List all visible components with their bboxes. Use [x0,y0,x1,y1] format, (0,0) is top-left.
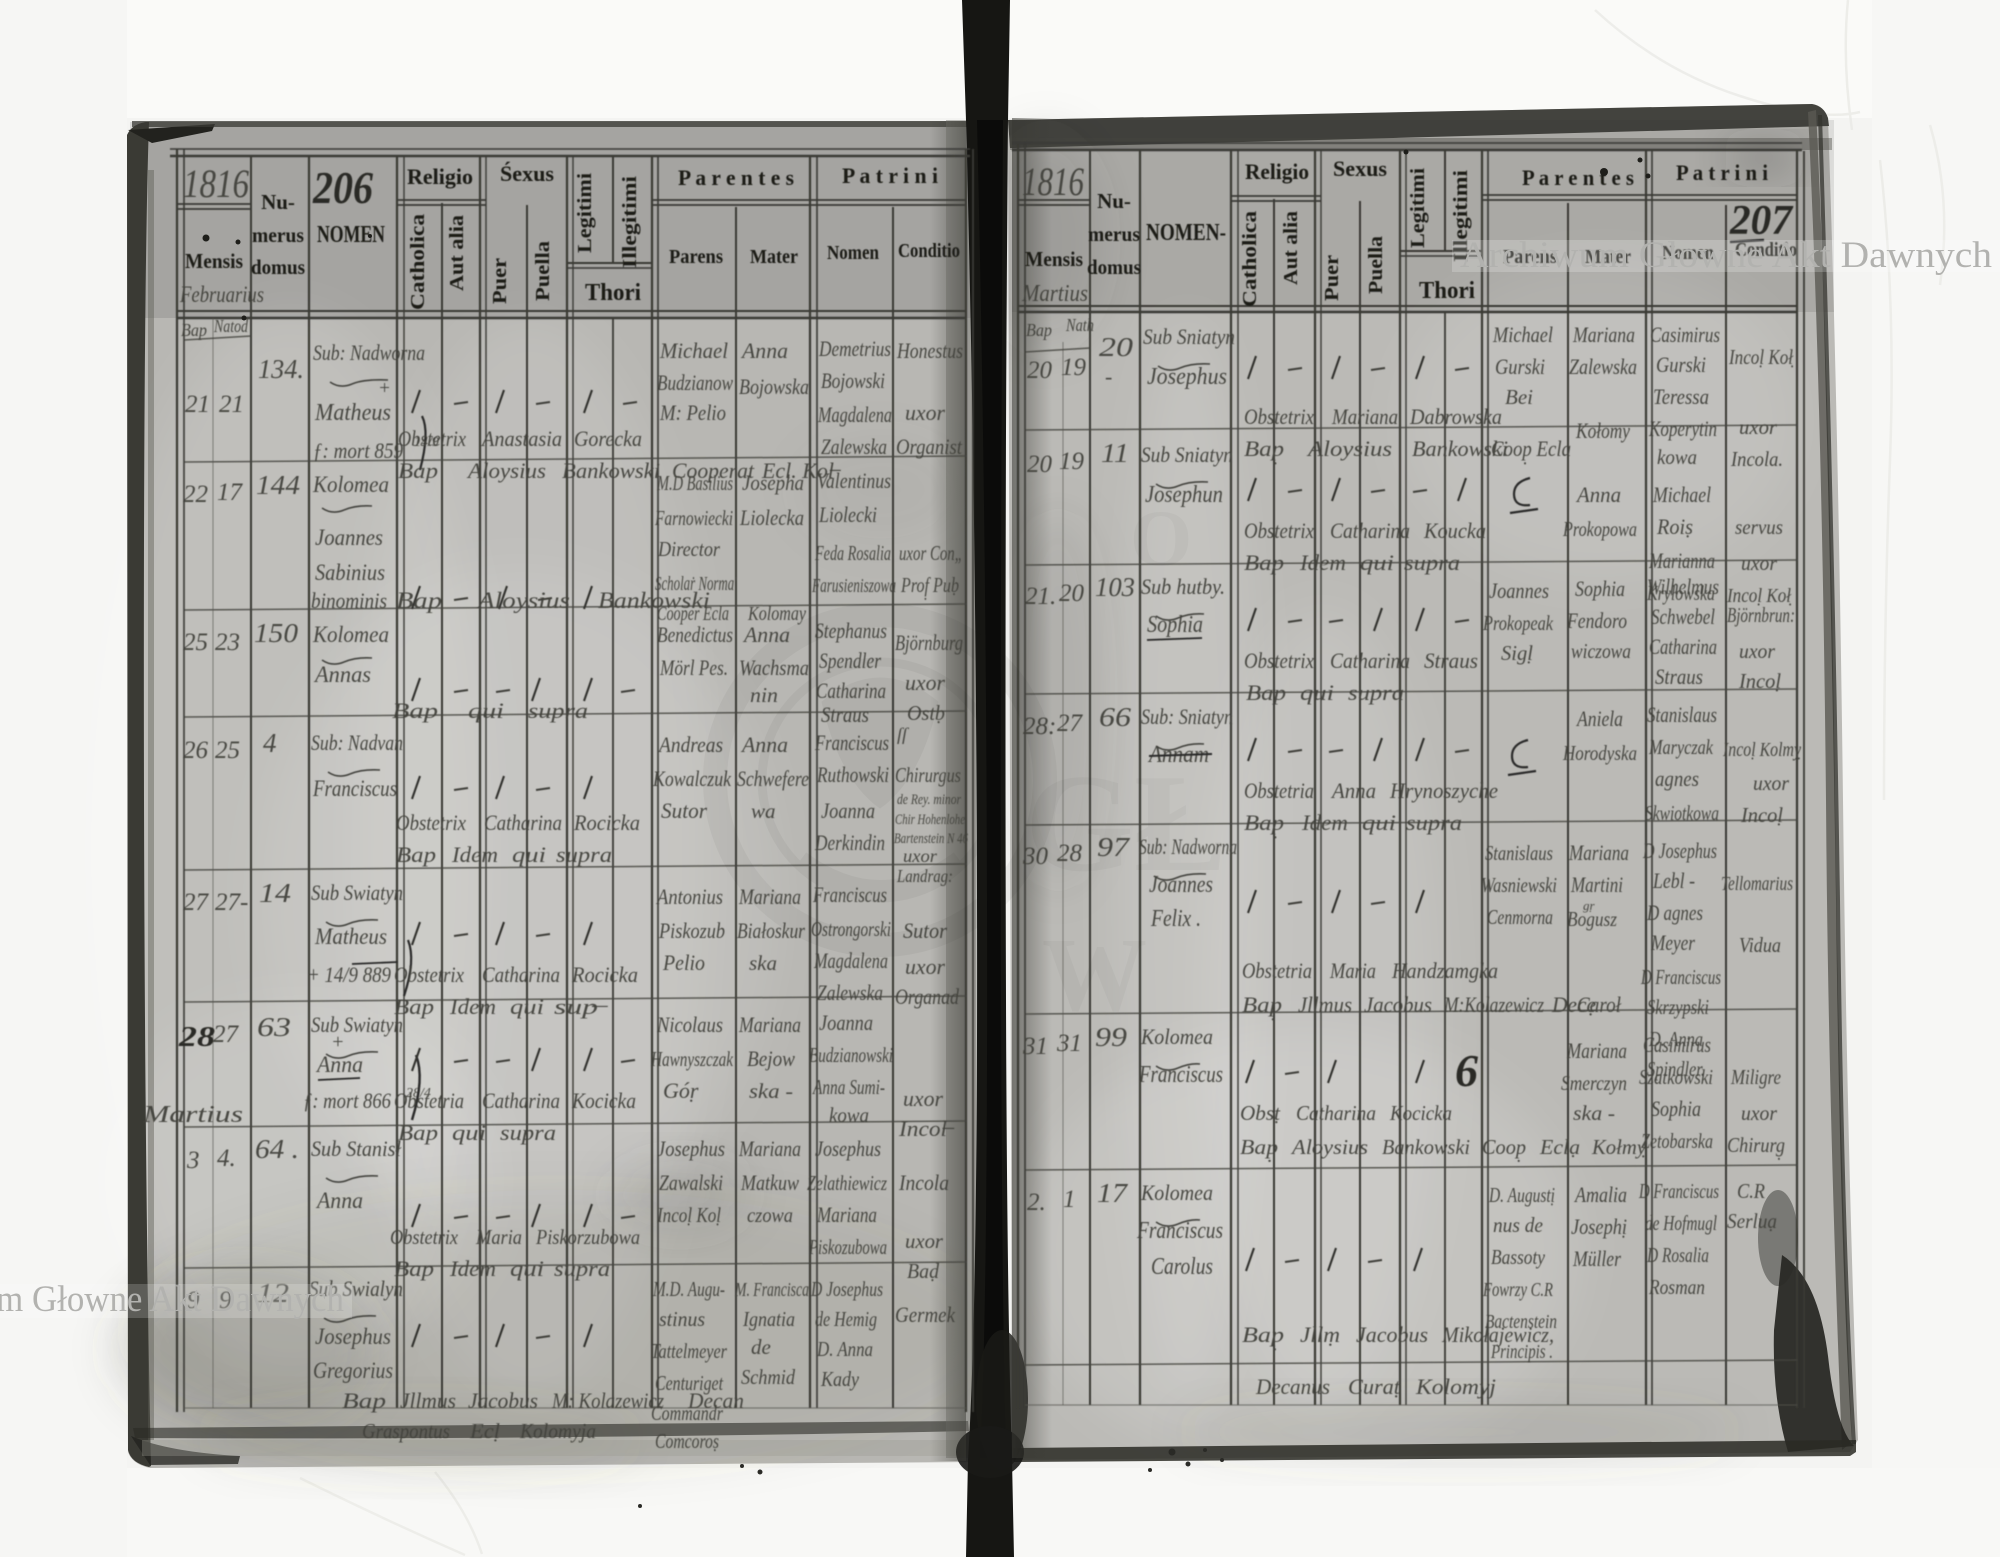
svg-text:Coop̣ Ecla: Coop̣ Ecla [1491,436,1571,465]
svg-text:supra: supra [1404,550,1460,575]
svg-text:D Franciscus: D Franciscus [1640,965,1721,989]
svg-text:Sabinius: Sabinius [315,560,385,585]
svg-text:66: 66 [1099,702,1132,732]
svg-text:gṛ: gṛ [1583,898,1596,913]
svg-text:de Hemig: de Hemig [815,1307,877,1331]
svg-text:Aut alia: Aut alia [1280,211,1302,285]
svg-text:Rocicka: Rocicka [573,810,640,835]
svg-text:Felix .: Felix . [1150,906,1201,932]
svg-text:Puer: Puer [489,258,511,304]
svg-text:Anna Sumi-: Anna Sumi- [812,1075,885,1099]
svg-text:czowa: czowa [747,1203,793,1227]
svg-text:Carolus: Carolus [1151,1254,1213,1280]
svg-text:Coop̣: Coop̣ [1482,1135,1526,1163]
svg-text:-: - [1105,364,1112,389]
svg-text:Josephị: Josephị [1571,1214,1627,1239]
svg-text:Handzamgka: Handzamgka [1391,958,1498,983]
svg-text:25: 25 [215,737,240,764]
svg-text:Stanislaus: Stanislaus [1485,841,1553,865]
svg-text:Gurski: Gurski [1656,352,1706,377]
svg-text:Religio: Religio [407,164,473,189]
svg-text:Mariana: Mariana [738,1012,801,1037]
svg-text:Mensis: Mensis [1025,247,1083,271]
svg-text:Schwefere: Schwefere [737,766,809,791]
svg-text:Lebl -: Lebl - [1652,868,1695,893]
svg-text:Honestus: Honestus [896,338,963,363]
svg-text:Mariana: Mariana [1568,840,1629,865]
svg-text:+: + [378,378,391,399]
svg-text:Piskozub: Piskozub [658,918,725,943]
svg-text:144: 144 [256,470,300,500]
svg-text:Bassoty: Bassoty [1491,1245,1546,1269]
svg-text:Bap̣: Bap̣ [1244,810,1284,839]
svg-text:Annas: Annas [313,662,371,687]
svg-text:Feda Rosalia: Feda Rosalia [814,541,891,565]
svg-text:Prof̣ Puḅ: Prof̣ Puḅ [900,573,959,601]
svg-text:Franciscus: Franciscus [1136,1218,1223,1244]
svg-text:de Rey. minor: de Rey. minor [897,792,961,808]
svg-text:25: 25 [183,629,208,656]
svg-text:D Josephus: D Josephus [1642,838,1717,863]
svg-text:23: 23 [215,629,240,656]
svg-text:Nu-: Nu- [1097,189,1131,213]
svg-text:Jllṃ: Jllṃ [1300,1322,1340,1347]
svg-text:Josephus: Josephus [657,1136,725,1161]
svg-text:Illegitimi: Illegitimi [619,175,641,268]
svg-text:Skwiotkowa: Skwiotkowa [1645,801,1719,825]
svg-text:Joanna: Joanna [819,1010,873,1035]
svg-text:Michael: Michael [1492,322,1553,347]
svg-text:21: 21 [185,391,210,418]
svg-text:Tattelmeyer: Tattelmeyer [651,1339,728,1363]
svg-text:Amalia: Amalia [1573,1182,1627,1207]
svg-text:O: O [1130,495,1192,583]
svg-text:Obstetrix: Obstetrix [396,810,466,835]
svg-text:Bap: Bap [342,1388,386,1413]
svg-text:Catharina: Catharina [484,810,562,835]
svg-text:Serluạ: Serluạ [1727,1209,1777,1233]
svg-text:Maria: Maria [1329,958,1376,983]
svg-text:D. Anna: D. Anna [816,1337,873,1361]
svg-text:Hawnyszczak: Hawnyszczak [650,1047,733,1071]
svg-text:Straus: Straus [1655,664,1703,689]
svg-text:Sub Sniatyn: Sub Sniatyn [1141,442,1233,467]
svg-text:Wasniewski: Wasniewski [1481,873,1557,897]
svg-text:Kolomea: Kolomea [312,622,389,647]
svg-text:Kocicka: Kocicka [571,1088,636,1113]
svg-text:20: 20 [1059,580,1085,607]
svg-text:Februarius: Februarius [179,282,264,307]
svg-text:Martius: Martius [142,1102,243,1128]
svg-text:Góṛ: Góṛ [663,1078,699,1103]
svg-text:qui: qui [1362,810,1396,835]
svg-text:M.D Basilius: M.D Basilius [656,471,733,495]
svg-text:domus: domus [251,255,305,279]
svg-text:Incoḷ Kolmỵ: Incoḷ Kolmỵ [1722,739,1801,761]
svg-text:P a r e n t e s: P a r e n t e s [1522,165,1634,190]
svg-text:Chir Hohenlohe: Chir Hohenlohe [895,812,965,828]
svg-text:ƒ: mort 859: ƒ: mort 859 [313,438,403,463]
svg-text:Ecḷ: Ecḷ [469,1419,500,1443]
svg-text:Jllmus: Jllmus [1298,992,1352,1017]
svg-text:nus de: nus de [1493,1213,1543,1237]
svg-text:D Franciscus: D Franciscus [1638,1179,1719,1203]
svg-text:Kolomea: Kolomea [1140,1180,1213,1205]
svg-text:Smerczyn: Smerczyn [1561,1071,1627,1095]
svg-text:Mensis: Mensis [185,249,243,273]
svg-text:Incola.: Incola. [1730,447,1783,471]
svg-text:Incola: Incola [898,1170,949,1195]
svg-text:Straus: Straus [1424,648,1478,673]
svg-text:Kady: Kady [820,1367,859,1391]
svg-text:11: 11 [1101,438,1129,468]
svg-text:Nu-: Nu- [261,190,295,214]
svg-text:P a t r i n i: P a t r i n i [842,163,938,188]
svg-text:Budzianow: Budzianow [657,370,733,395]
svg-text:de Hofmugl: de Hofmugl [1645,1211,1717,1235]
svg-text:Josephus: Josephus [1147,364,1227,390]
svg-text:Catholica: Catholica [1239,211,1261,307]
svg-text:Idem: Idem [1301,810,1348,835]
svg-text:21.: 21. [1025,583,1056,610]
svg-text:Aloysius: Aloysius [1290,1135,1368,1159]
svg-text:Gurski: Gurski [1495,354,1545,379]
svg-text:Obstetrix: Obstetrix [1244,404,1314,429]
svg-text:Bap: Bap [1244,550,1284,575]
svg-text:Catharina: Catharina [482,1088,560,1113]
svg-text:Zalewska: Zalewska [821,434,887,459]
svg-text:uxor Con„: uxor Con„ [899,541,963,565]
svg-text:kowa: kowa [829,1103,869,1127]
svg-text:supra: supra [554,1256,610,1281]
svg-text:Stanislaus: Stanislaus [1647,702,1717,727]
svg-text:Budzianowski: Budzianowski [809,1043,893,1067]
svg-text:Organad: Organad [895,984,960,1009]
svg-text:Baḍ: Baḍ [907,1259,939,1283]
svg-text:63: 63 [257,1012,291,1042]
svg-text:4: 4 [263,728,277,758]
svg-text:17: 17 [217,479,244,506]
svg-text:31: 31 [1056,1030,1082,1057]
svg-text:ska -: ska - [1573,1101,1615,1125]
svg-text:1: 1 [1063,1186,1076,1213]
svg-text:Obstetria: Obstetria [1244,778,1314,803]
svg-text:uxor: uxor [905,1229,944,1253]
svg-text:Joanna: Joanna [821,798,875,823]
svg-text:28: 28 [178,1021,216,1053]
svg-text:Maria: Maria [475,1225,522,1249]
svg-text:Demetrius: Demetrius [818,336,891,361]
svg-text:Rosman: Rosman [1648,1275,1705,1299]
svg-text:Mariana: Mariana [1572,322,1635,347]
svg-text:Mörl Pes.: Mörl Pes. [659,655,728,680]
svg-text:Commandr: Commandr [651,1401,724,1425]
svg-text:Bap: Bap [392,698,438,723]
svg-text:Rocicka: Rocicka [571,962,638,987]
svg-text:Sophia: Sophia [1575,576,1625,601]
svg-text:Zawalski: Zawalski [659,1170,723,1195]
svg-text:Horodyska: Horodyska [1562,741,1637,765]
svg-text:Bap: Bap [398,1120,438,1145]
svg-text:Nath: Nath [1065,315,1094,335]
svg-text:19: 19 [1061,354,1087,381]
svg-text:14: 14 [259,878,291,908]
svg-text:Sub Swiatyn: Sub Swiatyn [311,1012,403,1037]
svg-text:Jllmus: Jllmus [400,1388,456,1413]
svg-text:103: 103 [1095,572,1135,602]
svg-text:31: 31 [1022,1033,1048,1060]
svg-text:Archiwum Głowne Akt Dawnych: Archiwum Głowne Akt Dawnych [1460,235,1993,276]
svg-text:Anna: Anna [1330,778,1376,803]
svg-text:uxor: uxor [903,1086,943,1111]
svg-text:Antonius: Antonius [655,884,723,909]
svg-text:Conditio: Conditio [898,240,960,262]
svg-text:4.: 4. [217,1145,236,1172]
svg-text:Bankowski: Bankowski [1382,1135,1470,1159]
svg-text:qui: qui [452,1120,486,1145]
svg-text:Bap: Bap [181,320,207,340]
svg-text:19: 19 [1059,448,1085,475]
svg-text:ƒ: mort 866: ƒ: mort 866 [303,1088,391,1113]
svg-text:Incoḷ Koḷ: Incoḷ Koḷ [656,1203,721,1227]
svg-text:Anna: Anna [1575,482,1621,507]
svg-text:Koucka: Koucka [1423,518,1486,543]
svg-text:D Rosalia: D Rosalia [1646,1243,1709,1267]
svg-text:Michael: Michael [1652,482,1711,507]
svg-text:Josephus: Josephus [315,1324,391,1349]
svg-text:Matkuw: Matkuw [740,1170,799,1195]
svg-text:Prokopeak: Prokopeak [1482,611,1553,635]
svg-text:Sub Sniatyn: Sub Sniatyn [1143,324,1235,349]
svg-text:Bojowska: Bojowska [739,374,809,399]
svg-text:Zalewska: Zalewska [1569,354,1637,379]
svg-text:Kołomy: Kołomy [1575,418,1630,443]
svg-text:Sub Stanisł: Sub Stanisł [311,1136,402,1161]
svg-text:C.R: C.R [1737,1179,1765,1203]
svg-text:Obstetrix: Obstetrix [398,426,466,451]
svg-text:1816: 1816 [1022,159,1084,204]
svg-text:Jacobus: Jacobus [1356,1322,1428,1347]
svg-text:uxor: uxor [1741,551,1778,575]
svg-text:26: 26 [183,737,209,764]
svg-text:Bap: Bap [1246,680,1286,705]
svg-text:supra: supra [528,698,588,723]
svg-text:Incoḷ: Incoḷ [1740,803,1783,827]
svg-text:binominis: binominis [311,588,387,613]
svg-text:Vidua: Vidua [1739,933,1781,957]
svg-text:Bap̣: Bap̣ [1242,1322,1284,1351]
svg-text:Idem: Idem [451,842,498,867]
svg-text:Gregorius: Gregorius [313,1358,393,1383]
svg-text:Schwebel: Schwebel [1651,604,1715,629]
svg-text:Bap̣: Bap̣ [1242,992,1282,1021]
svg-text:Bactenstein: Bactenstein [1485,1311,1557,1333]
svg-text:Müller: Müller [1572,1246,1621,1271]
svg-text:Idem: Idem [1299,550,1346,575]
svg-text:Catharina: Catharina [482,962,560,987]
svg-text:qui: qui [512,842,546,867]
svg-text:Franciscus: Franciscus [312,776,397,801]
svg-text:Magdalena: Magdalena [817,402,892,427]
svg-text:Anna: Anna [315,1188,363,1213]
svg-text:merus: merus [252,223,304,247]
svg-text:Mariana: Mariana [1566,1038,1627,1063]
svg-text:Śexus: Śexus [500,161,554,186]
svg-text:Skrzypski: Skrzypski [1647,995,1709,1019]
svg-text:servus: servus [1735,515,1783,539]
svg-text:Bojowski: Bojowski [821,368,885,393]
svg-text:Puer: Puer [1321,255,1343,301]
svg-text:M: Kolazewicz: M: Kolazewicz [551,1388,664,1413]
svg-text:de: de [751,1335,771,1359]
svg-text:Schmid: Schmid [741,1365,795,1389]
svg-text:Martius: Martius [1021,281,1088,307]
svg-text:Caroł: Caroł [1577,992,1622,1017]
svg-text:Josepha: Josepha [742,470,804,495]
svg-text:Nomen: Nomen [827,242,879,264]
svg-text:Anna: Anna [315,1052,363,1077]
svg-text:Curaṭ: Curaṭ [1348,1374,1401,1399]
svg-text:Mariana: Mariana [1331,404,1398,429]
svg-text:Mater: Mater [750,246,798,268]
svg-text:Sub Swiatyn: Sub Swiatyn [311,880,403,905]
svg-text:Mariana: Mariana [738,1136,801,1161]
svg-text:Principis .: Principis . [1490,1341,1553,1363]
svg-text:Teressa: Teressa [1653,384,1709,409]
svg-text:Puella: Puella [1365,236,1387,294]
svg-text:P a t r i n i: P a t r i n i [1676,160,1768,185]
svg-text:Thori: Thori [1419,278,1475,304]
svg-text:Aloysius: Aloysius [466,458,546,483]
svg-text:Sub: Nadworna: Sub: Nadworna [313,340,425,365]
svg-text:Jacobus: Jacobus [468,1388,538,1413]
svg-text:Legitimi: Legitimi [1407,168,1429,248]
svg-text:supra: supra [1406,810,1462,835]
svg-text:Mariana: Mariana [816,1202,877,1227]
svg-text:Matheus: Matheus [314,400,391,426]
svg-text:1816: 1816 [183,161,249,206]
svg-text:Jacobus: Jacobus [1364,992,1432,1017]
svg-text:Sexus: Sexus [1333,156,1387,181]
svg-text:Bap̣: Bap̣ [1244,436,1284,465]
svg-text:uxor: uxor [1741,1101,1778,1125]
svg-text:stinus: stinus [659,1307,705,1331]
svg-text:22: 22 [183,481,208,508]
svg-text:Derkindin: Derkindin [814,830,885,855]
svg-text:kowa: kowa [1657,445,1697,469]
svg-text:supra: supra [556,842,612,867]
svg-text:Casimirus: Casimirus [1650,322,1720,347]
svg-text:Obstetria: Obstetria [1242,958,1312,983]
svg-text:Ignatia: Ignatia [742,1307,795,1331]
svg-text:D. Augustị: D. Augustị [1488,1183,1555,1207]
svg-text:Maryczak: Maryczak [1648,735,1713,759]
svg-text:Comcoroṣ: Comcoroṣ [655,1429,719,1453]
svg-text:Gorecka: Gorecka [574,426,642,451]
svg-text:27: 27 [183,889,210,916]
svg-text:Obstetrix: Obstetrix [1244,518,1314,543]
svg-text:Liolecka: Liolecka [739,505,804,530]
svg-text:Zetobarska: Zetobarska [1641,1129,1713,1153]
svg-text:Religio: Religio [1245,159,1309,184]
svg-text:Joannes: Joannes [1489,578,1549,603]
svg-text:Kołmỵ: Kołmỵ [1591,1135,1647,1159]
svg-text:supra: supra [1348,680,1404,705]
svg-text:Sub: Nadvan: Sub: Nadvan [311,730,403,755]
svg-text:uxor: uxor [1753,771,1790,795]
svg-text:Sophia: Sophia [1651,1096,1701,1121]
svg-text:qui: qui [468,698,504,723]
svg-text:Anna: Anna [740,338,788,363]
svg-text:20: 20 [1027,451,1053,478]
svg-text:Franciscus: Franciscus [1138,1062,1223,1088]
svg-text:NOMEN: NOMEN [317,222,385,248]
svg-text:Parens: Parens [669,246,723,268]
svg-text:supra: supra [500,1120,556,1145]
svg-text:Decanus: Decanus [1255,1374,1330,1399]
svg-text:Bankowski: Bankowski [562,458,660,483]
svg-text:uxor: uxor [903,846,938,866]
svg-text:Farnowiecki: Farnowiecki [654,506,733,530]
svg-text:Sutor: Sutor [661,798,707,823]
svg-text:Director: Director [657,537,721,561]
svg-text:D agnes: D agnes [1646,900,1703,925]
svg-text:Organist: Organist [896,434,963,459]
svg-text:Scholaṙ Norma′: Scholaṙ Norma′ [655,573,737,595]
svg-text:Sub: Sniatyn: Sub: Sniatyn [1141,704,1233,729]
svg-text:D Josephus: D Josephus [810,1277,883,1301]
svg-text:Idem: Idem [449,994,496,1019]
svg-text:Aniela: Aniela [1575,706,1623,731]
svg-text:Fendoro: Fendoro [1566,608,1627,633]
svg-text:Casimirus: Casimirus [1643,1032,1711,1057]
svg-text:Fowrzy C.R: Fowrzy C.R [1482,1279,1553,1301]
svg-text:206: 206 [312,162,373,213]
svg-text:qui: qui [1300,680,1334,705]
svg-text:Nicolaus: Nicolaus [656,1012,723,1037]
svg-text:27: 27 [213,1021,240,1048]
svg-text:Germek: Germek [895,1302,956,1327]
svg-text:qui: qui [1360,550,1394,575]
svg-text:W: W [1042,916,1147,1033]
svg-text:20: 20 [1099,332,1134,362]
svg-text:Björnbrun:: Björnbrun: [1727,603,1795,627]
svg-text:Farusieniszowa: Farusieniszowa [811,575,896,597]
svg-text:150: 150 [254,618,299,648]
svg-text:uxor: uxor [1739,415,1778,439]
svg-text:+: + [331,1031,345,1053]
svg-text:Kolomyja: Kolomyja [519,1419,596,1443]
svg-text:M:Kolazewicz: M:Kolazewicz [1443,992,1544,1017]
svg-text:Sophia: Sophia [1147,612,1203,638]
svg-text:Kolomyj: Kolomyj [1415,1374,1496,1399]
svg-text:Catharina: Catharina [1649,634,1717,659]
svg-text:Catharina: Catharina [1296,1101,1376,1125]
svg-text:2.: 2. [1027,1189,1046,1216]
svg-text:Josephus: Josephus [815,1136,881,1161]
svg-text:GŁ: GŁ [1025,746,1227,901]
svg-text:Aut alia: Aut alia [446,215,468,291]
svg-text:Legitimi: Legitimi [574,173,596,253]
svg-text:Marianna: Marianna [1648,548,1715,573]
svg-text:21: 21 [219,391,244,418]
svg-text:20: 20 [1027,357,1053,384]
svg-text:Aloysius: Aloysius [476,588,570,613]
svg-text:+ 14/9 889: + 14/9 889 [307,962,391,987]
svg-text:Bap: Bap [398,458,438,483]
svg-text:wiczowa: wiczowa [1571,639,1631,663]
svg-text:agnes: agnes [1655,766,1699,791]
